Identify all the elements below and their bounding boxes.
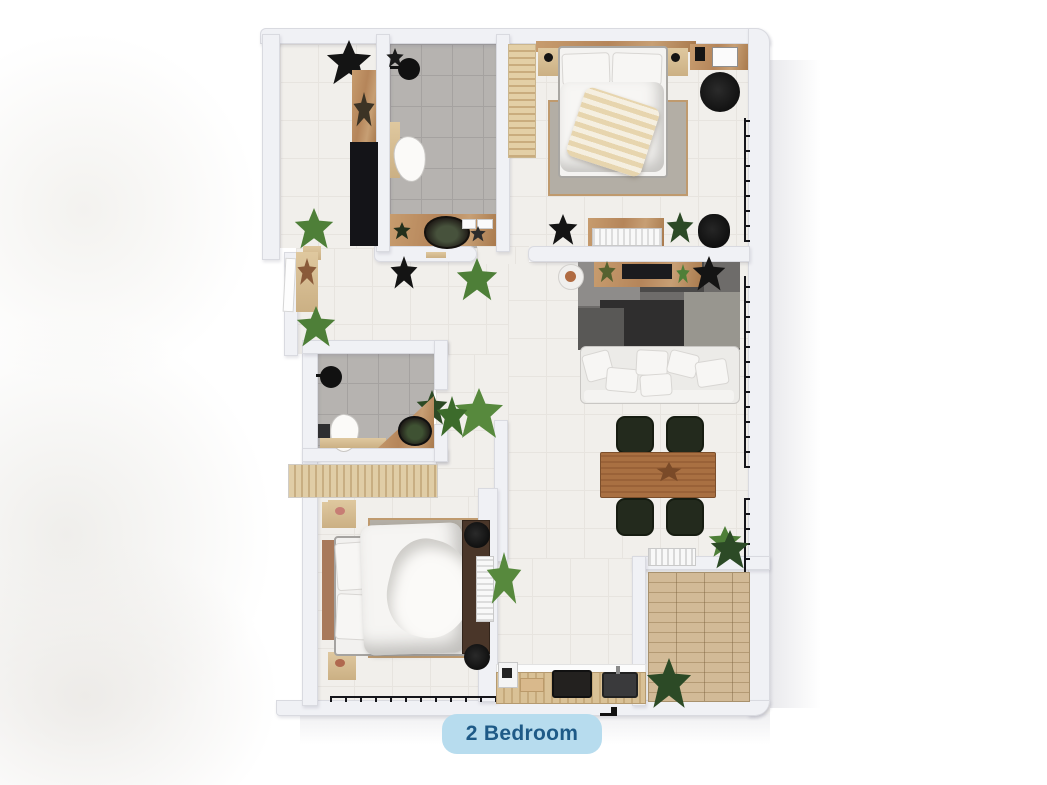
cooktop <box>552 670 592 698</box>
lamp-icon <box>544 53 553 62</box>
wall-right <box>748 28 770 716</box>
wall-bathroom2-right-a <box>434 340 448 390</box>
plan-drop-shadow <box>768 60 834 708</box>
sofa-cushion <box>639 373 672 397</box>
dining-chair <box>616 416 654 454</box>
bath2-dark-box <box>318 424 330 438</box>
window-living <box>744 276 750 468</box>
wall-hall-south-b <box>528 246 750 262</box>
window-bedroom2 <box>330 696 496 702</box>
desk-deco <box>695 47 705 61</box>
ac-unit <box>648 548 696 566</box>
entry-wardrobe <box>350 142 378 246</box>
sofa-cushion <box>605 367 639 394</box>
radiator <box>476 556 494 622</box>
wall-bathroom1-left <box>376 34 390 252</box>
unit-type-badge[interactable]: 2 Bedroom <box>442 714 602 754</box>
wall-left-lower <box>302 350 318 706</box>
unit-type-badge-label: 2 Bedroom <box>466 722 578 746</box>
living-rug-patch <box>578 308 624 350</box>
bath1-towels <box>477 219 493 229</box>
small-arrow-mark <box>600 713 617 716</box>
stool-chair <box>698 214 730 248</box>
office-chair <box>700 72 740 112</box>
living-rug-patch <box>684 292 740 348</box>
pouf <box>464 522 490 548</box>
dining-chair <box>666 416 704 454</box>
shower-arm <box>390 66 400 69</box>
wall-bathroom2-top <box>302 340 448 354</box>
sofa-cushion <box>694 358 730 389</box>
dining-table <box>600 452 716 498</box>
shower-arm <box>316 374 324 377</box>
side-table-top <box>565 271 576 282</box>
background-watermark <box>0 540 280 785</box>
background-watermark <box>0 30 260 390</box>
faucet-icon <box>616 666 620 674</box>
pillow <box>561 52 610 86</box>
nightstand-deco <box>335 659 345 667</box>
small-arrow-mark <box>611 707 617 713</box>
dining-chair <box>666 498 704 536</box>
bedroom1-slatted-wardrobe <box>508 44 536 158</box>
nightstand-deco <box>335 507 345 515</box>
floor-plan-page: 2 Bedroom <box>0 0 1047 785</box>
bath2-basin <box>398 416 432 446</box>
wall-left-upper <box>262 34 280 260</box>
background-watermark <box>0 320 270 750</box>
bedroom2-headboard <box>322 540 334 640</box>
pillow <box>611 52 662 86</box>
laptop-icon <box>712 47 738 67</box>
pouf <box>464 644 490 670</box>
slatted-closet <box>288 464 438 498</box>
coffee-machine-front <box>502 668 512 678</box>
bath1-towels <box>462 219 476 229</box>
radiator <box>592 228 662 246</box>
bath2-shelf <box>320 438 386 448</box>
hall-shelf <box>426 252 446 258</box>
tv-icon <box>622 264 672 279</box>
dining-chair <box>616 498 654 536</box>
sink <box>602 672 638 698</box>
lamp-icon <box>671 53 680 62</box>
shower-head-icon <box>320 366 342 388</box>
window-bedroom1 <box>744 118 750 242</box>
shower-head-icon <box>398 58 420 80</box>
wall-bathroom2-bottom <box>302 448 448 462</box>
cutting-board <box>520 678 544 692</box>
